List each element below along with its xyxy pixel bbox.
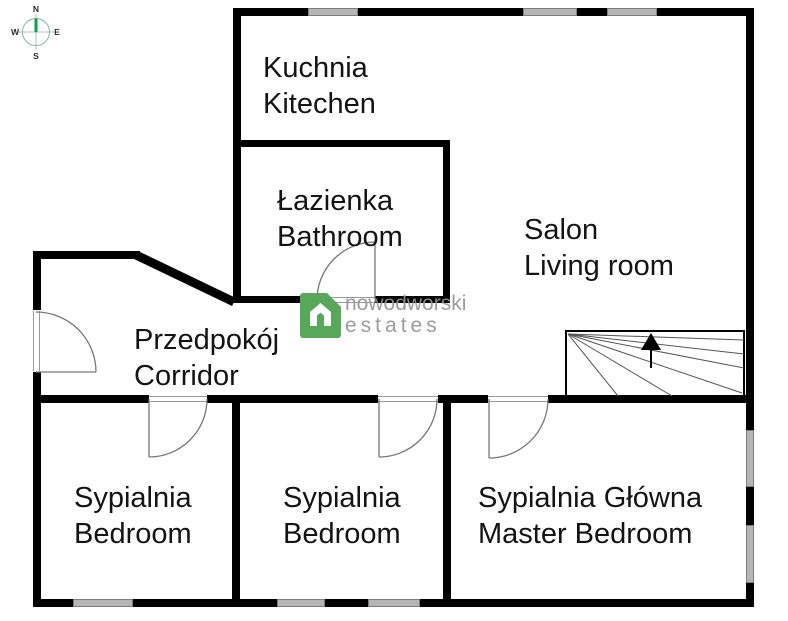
room-name-en: Bathroom [277,219,403,255]
room-name-pl: Sypialnia Główna [478,480,702,516]
room-name-en: Master Bedroom [478,516,702,552]
room-label-master-bedroom: Sypialnia Główna Master Bedroom [478,480,702,552]
room-name-en: Bedroom [283,516,401,552]
compass-label-west: W [11,27,20,37]
room-name-en: Living room [524,248,674,284]
room-name-pl: Kuchnia [263,50,376,86]
staircase [566,331,744,397]
wall-diagonal [136,255,234,302]
stairs-up-arrow [641,333,661,368]
compass-label-east: E [54,27,60,37]
room-name-pl: Salon [524,212,674,248]
compass: N S W E [6,3,70,63]
door-swing-entry [36,312,96,372]
compass-label-south: S [33,51,39,61]
compass-label-north: N [33,4,39,14]
room-label-kitchen: Kuchnia Kitechen [263,50,376,122]
watermark-text: nowodworski estates [345,293,466,337]
room-name-en: Kitechen [263,86,376,122]
room-name-pl: Sypialnia [74,480,192,516]
watermark-logo-shape [300,293,341,338]
watermark-line2: estates [345,315,466,337]
room-name-pl: Sypialnia [283,480,401,516]
door-swing-bedroom1 [149,399,207,457]
room-name-en: Bedroom [74,516,192,552]
door-swing-bedroom2 [379,399,437,457]
room-name-pl: Przedpokój [134,322,279,358]
room-label-bedroom-1: Sypialnia Bedroom [74,480,192,552]
room-label-bathroom: Łazienka Bathroom [277,183,403,255]
floor-plan: N S W E Kuchnia Kitechen Łazienka Bathro… [0,0,788,621]
door-swing-master [489,399,548,458]
room-name-pl: Łazienka [277,183,403,219]
room-name-en: Corridor [134,358,279,394]
watermark-logo [300,293,341,338]
room-label-corridor: Przedpokój Corridor [134,322,279,394]
room-label-living-room: Salon Living room [524,212,674,284]
watermark-line1: nowodworski [345,293,466,315]
room-label-bedroom-2: Sypialnia Bedroom [283,480,401,552]
